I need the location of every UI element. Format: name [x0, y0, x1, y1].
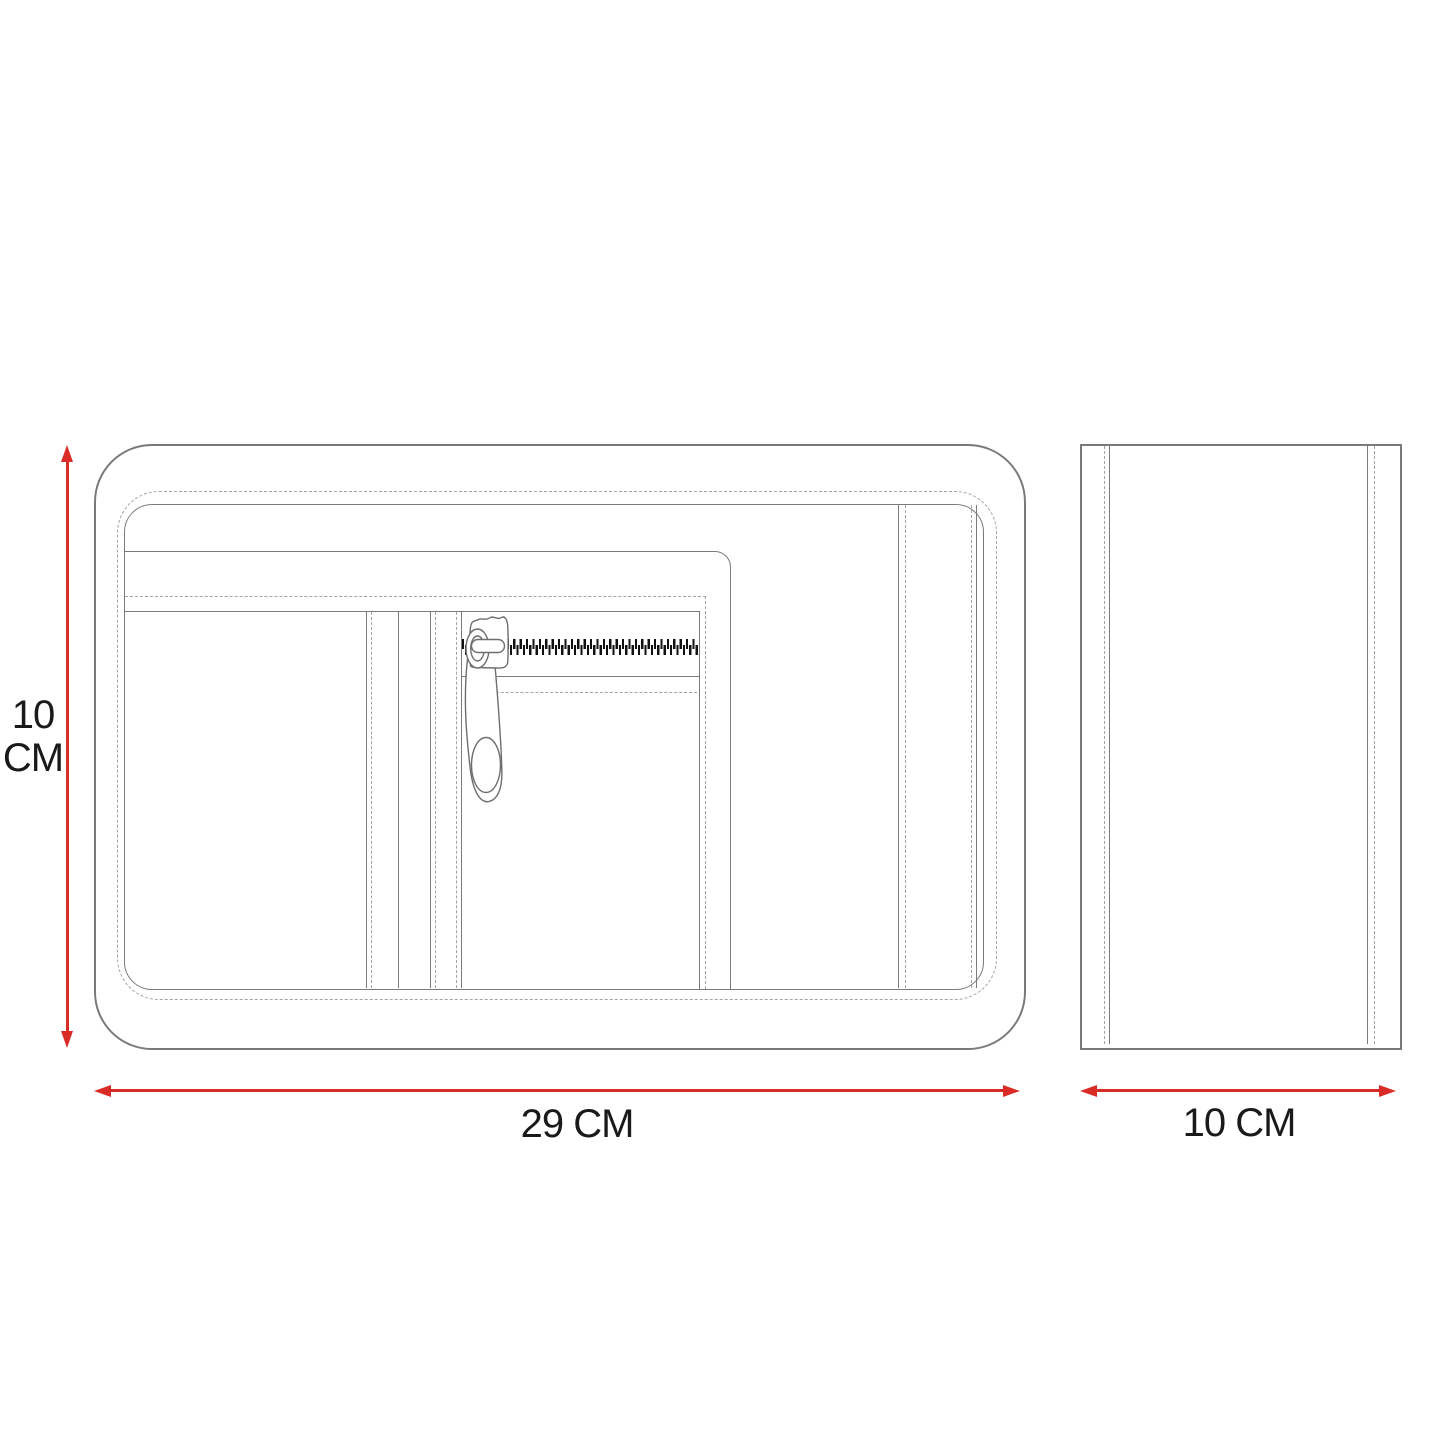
- depth-dimension-label: 10 CM: [1109, 1102, 1369, 1145]
- side-right-stitch-line: [1374, 446, 1375, 1044]
- side-left-stitch-line: [1104, 446, 1105, 1044]
- divider-strip2-left-line: [430, 612, 431, 988]
- width-dimension-label: 29 CM: [447, 1103, 707, 1146]
- right-band-right-edge: [976, 505, 977, 988]
- side-right-edge-line: [1367, 446, 1368, 1044]
- arrowhead-right-icon: [1003, 1085, 1020, 1097]
- height-value: 10: [0, 694, 69, 737]
- depth-dimension-line: [1094, 1089, 1382, 1092]
- zipper-slider-bridge: [472, 640, 505, 653]
- divider-strip2-stitch-left-line: [435, 612, 436, 988]
- divider-strip1-right-line: [398, 612, 399, 988]
- side-view-outline: [1080, 444, 1402, 1050]
- divider-strip1-stitch-line: [371, 612, 372, 988]
- divider-strip1-left-line: [366, 612, 367, 988]
- height-unit: CM: [0, 737, 69, 780]
- front-pocket-outline: [125, 611, 700, 989]
- zipper-pull-strap: [465, 659, 501, 802]
- side-left-edge-line: [1109, 446, 1110, 1044]
- arrowhead-right-icon: [1379, 1085, 1396, 1097]
- zipper-pull-icon: [440, 595, 550, 825]
- height-dimension-label: 10 CM: [0, 694, 69, 780]
- right-band-right-stitch: [971, 505, 972, 988]
- right-band-left-edge: [898, 505, 899, 988]
- width-dimension-line: [108, 1089, 1006, 1092]
- right-band-left-stitch: [905, 505, 906, 988]
- arrowhead-down-icon: [61, 1031, 73, 1048]
- technical-drawing-canvas: 10 CM 29 CM 10 CM: [0, 0, 1445, 1445]
